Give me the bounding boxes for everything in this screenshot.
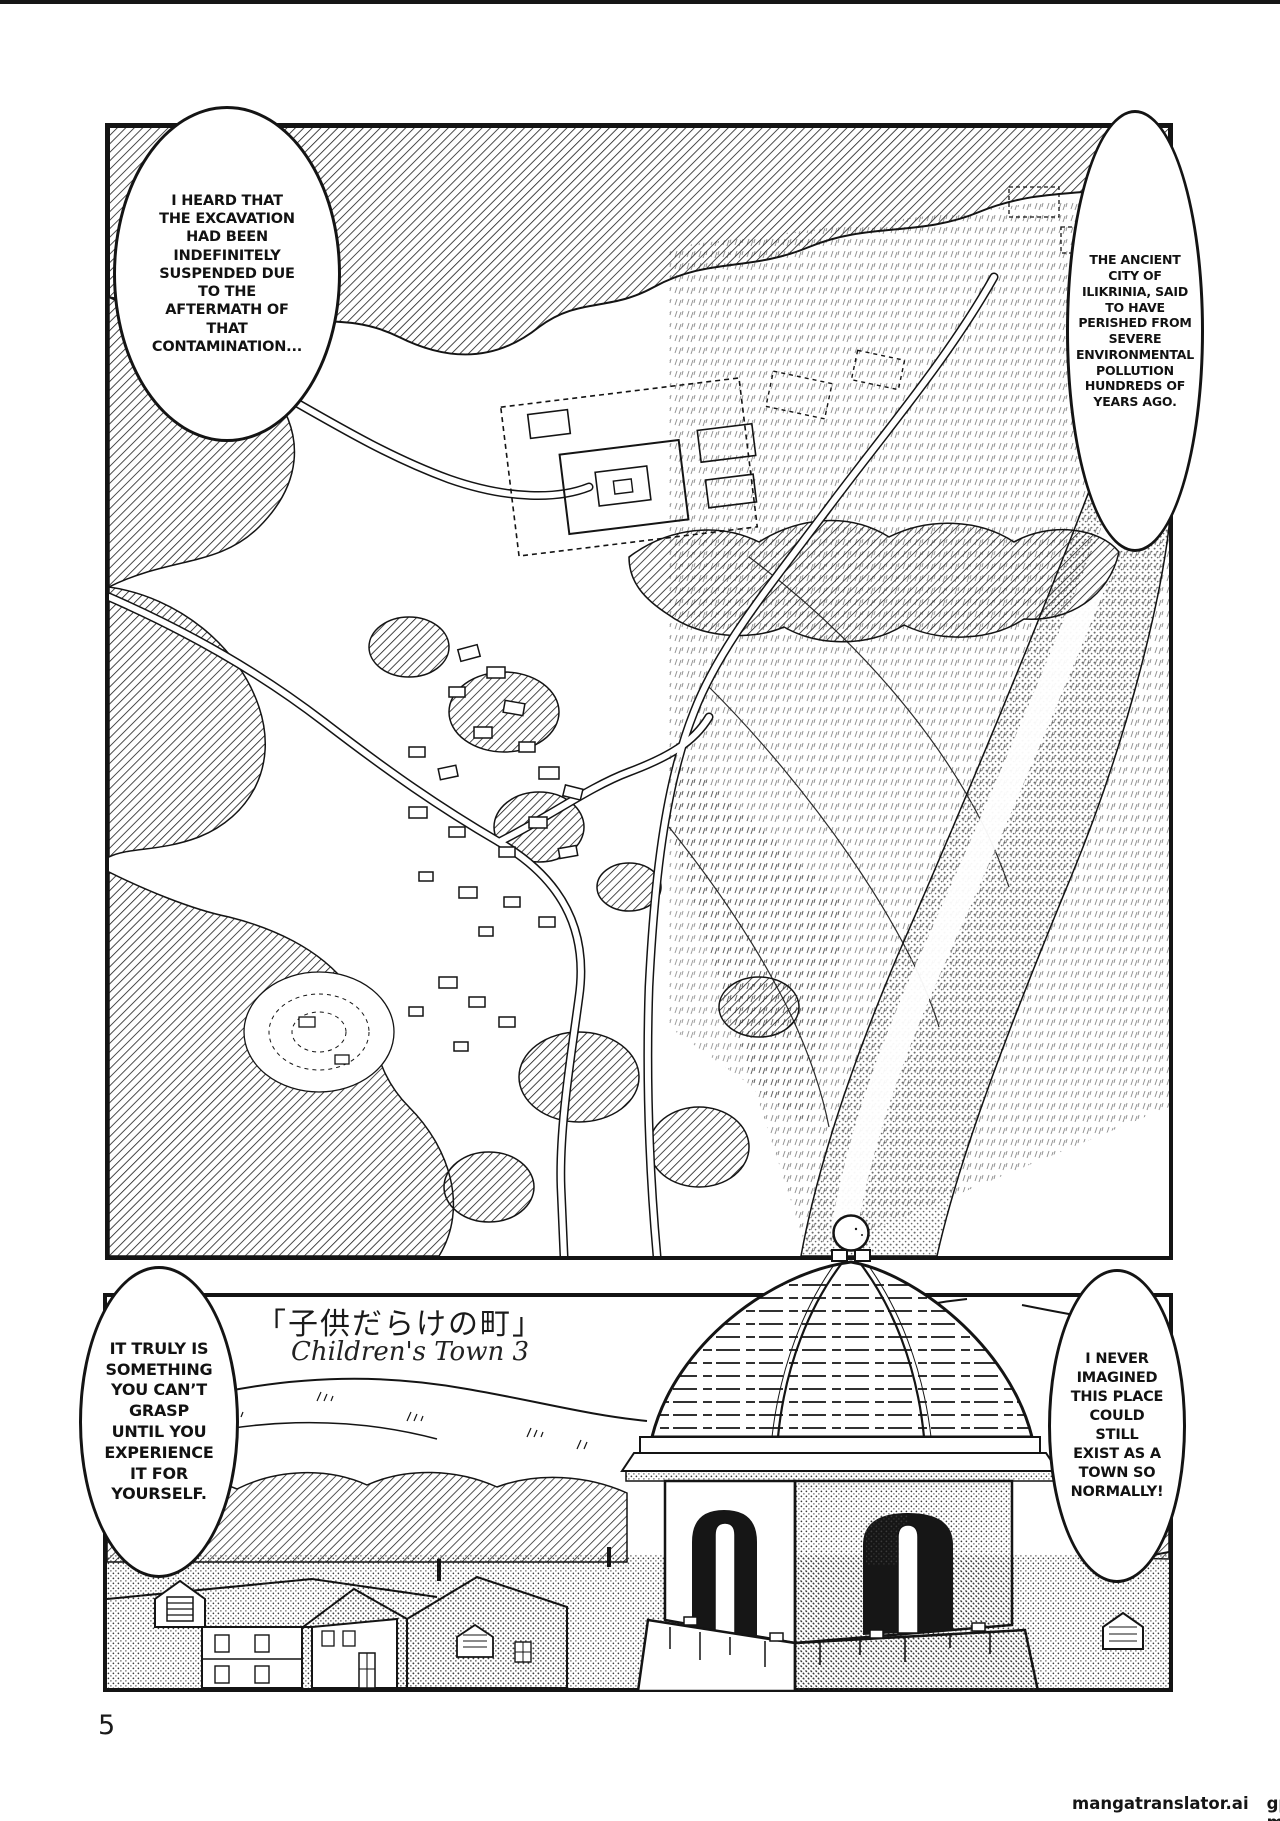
page-number: 5 [98, 1710, 115, 1741]
tower-body [665, 1481, 1012, 1643]
house-facade [202, 1627, 302, 1688]
watermark-site: mangatranslator.ai [1072, 1794, 1249, 1821]
speech-bubble-top-left: I HEARD THAT THE EXCAVATION HAD BEEN IND… [113, 106, 341, 442]
manga-page: 「子供だらけの町」 Children's Town 3 I HEARD THAT… [0, 0, 1280, 1821]
dome [630, 1262, 1050, 1437]
finial-ball [832, 1216, 870, 1262]
speech-bubble-bottom-right: I NEVER IMAGINED THIS PLACE COULD STILL … [1048, 1269, 1186, 1583]
page-top-edge [0, 0, 1280, 4]
bell-tower [620, 1205, 1055, 1691]
speech-bubble-top-right: THE ANCIENT CITY OF ILIKRINIA, SAID TO H… [1066, 110, 1204, 552]
watermark-model: gpt4o-mini [1267, 1794, 1280, 1821]
watermark: mangatranslator.ai gpt4o-mini [1072, 1794, 1280, 1821]
cornice [622, 1437, 1055, 1481]
chapter-title-english: Children's Town 3 [260, 1337, 560, 1367]
speech-bubble-bottom-left: IT TRULY IS SOMETHING YOU CAN’T GRASP UN… [79, 1266, 239, 1578]
